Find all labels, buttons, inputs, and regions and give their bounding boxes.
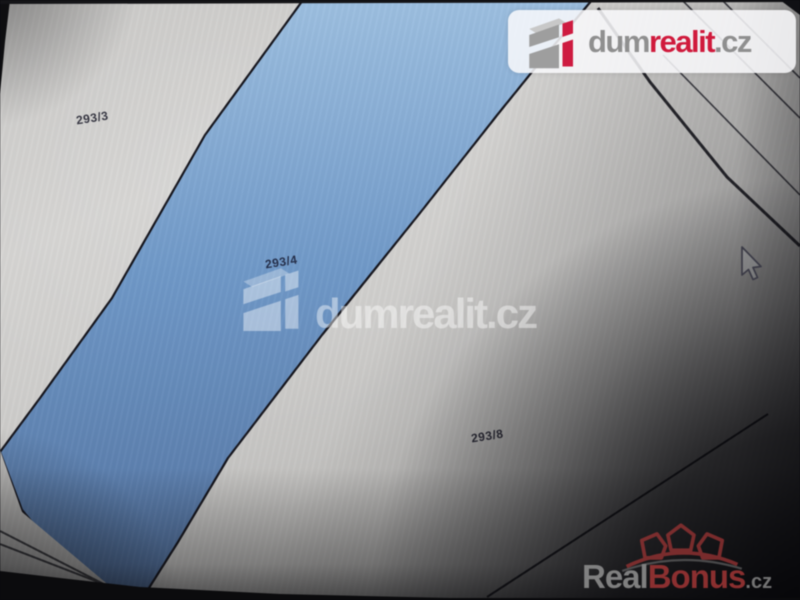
dumrealit-logo-text: dumrealit.cz [588,26,751,57]
cadastral-map-canvas[interactable]: 293/3 293/4 293/8 [0,0,800,600]
parcel-293-4-shape[interactable] [0,0,592,600]
photographed-screen: 293/3 293/4 293/8 dumrealit.cz dumrealit… [0,0,800,600]
dumrealit-building-icon [525,14,579,70]
dumrealit-logo-box[interactable]: dumrealit.cz [508,10,796,73]
logo-text-tld: .cz [714,24,751,59]
boundary-line-bottom-right [487,414,768,597]
logo-text-dum: dum [588,24,649,59]
map-geometry [0,0,800,600]
logo-text-realit: realit [649,24,714,59]
